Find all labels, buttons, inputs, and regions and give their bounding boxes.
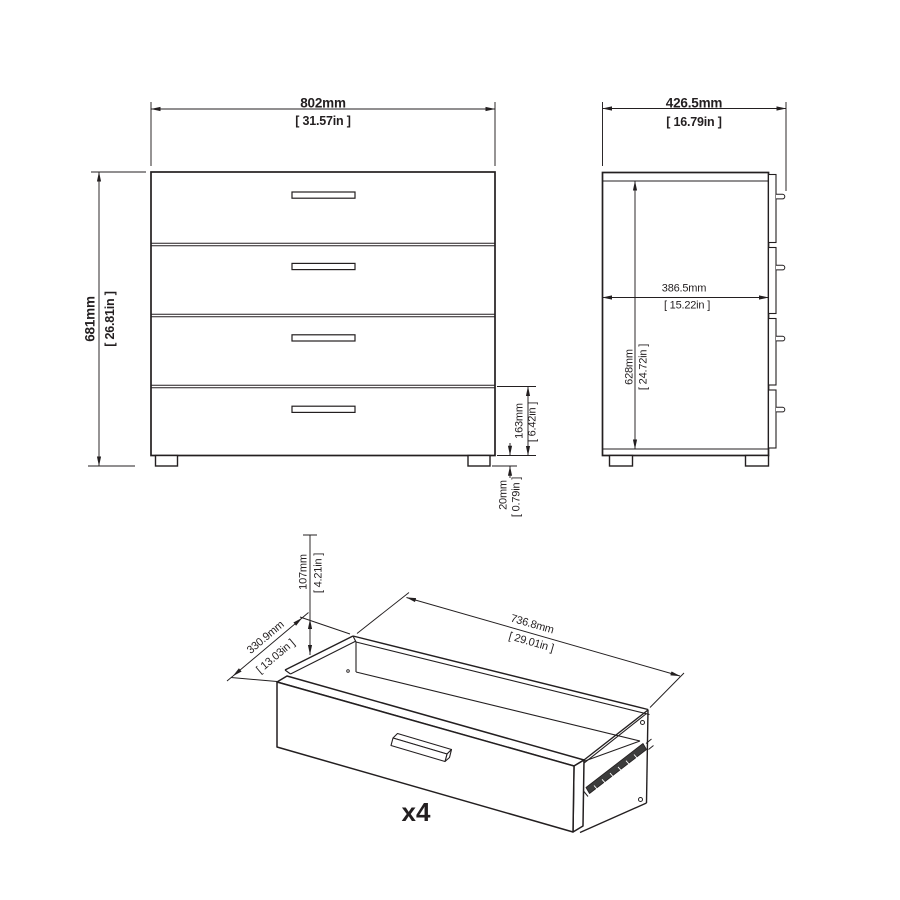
side-view-drawing <box>603 102 787 466</box>
screw-hole <box>641 721 645 725</box>
drawer-iso-drawing <box>227 535 684 833</box>
side-outline <box>603 173 769 456</box>
drawer-slide-rail <box>584 739 654 797</box>
drawer-front-edges <box>769 175 777 449</box>
screw-hole <box>347 670 350 673</box>
handle-pegs <box>776 194 785 412</box>
technical-drawing <box>0 0 900 900</box>
chest-feet <box>156 456 491 467</box>
side-feet <box>610 456 769 467</box>
front-view-drawing <box>88 102 536 478</box>
dimension-drawing-page: 802mm [ 31.57in ] 681mm [ 26.81in ] 163m… <box>0 0 900 900</box>
screw-hole <box>639 798 643 802</box>
